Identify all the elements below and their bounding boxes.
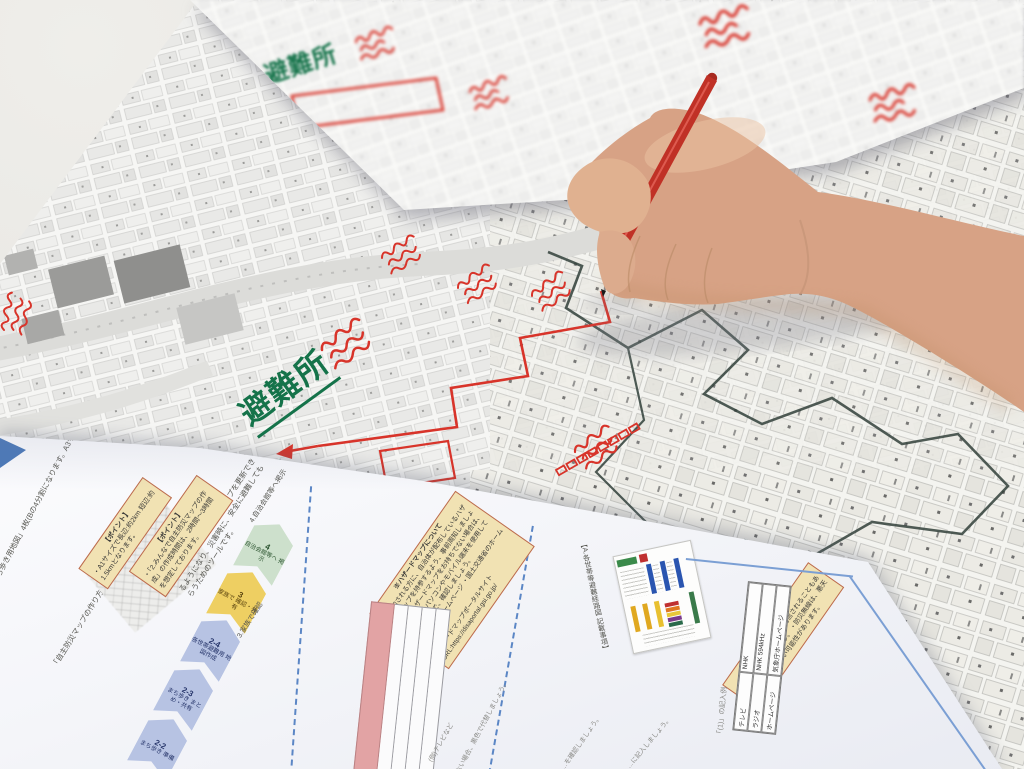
photo-scene: 避難所 [0,0,1024,769]
example-caption: 「(1)」の記入例 [714,686,729,737]
legend-caption: 【A.各世帯等避難経路図 記載事項】 [577,540,607,636]
info-table: テレビNHK ラジオNHK 594kHz ホームページ気象庁ホームページ [732,581,791,735]
page-border-line-2 [848,575,986,769]
bottom-note-1: …を確認しましょう。 [557,713,602,769]
thumb [567,158,651,233]
section-divider-1 [290,486,312,769]
bottom-note-2: …に記入しましょう。 [623,714,672,769]
page-border-line-1 [686,558,853,578]
instruction-document: 「B.まち歩き用地図」4枚(Bの4分割になります。A3サイズ) 「自主防災マップ… [0,420,1024,769]
pink-note-2: 色がない場合、黒色で代替しましょう。 [446,678,510,769]
legend-thumbnail [612,540,711,654]
page-fold-highlight [0,420,1024,490]
